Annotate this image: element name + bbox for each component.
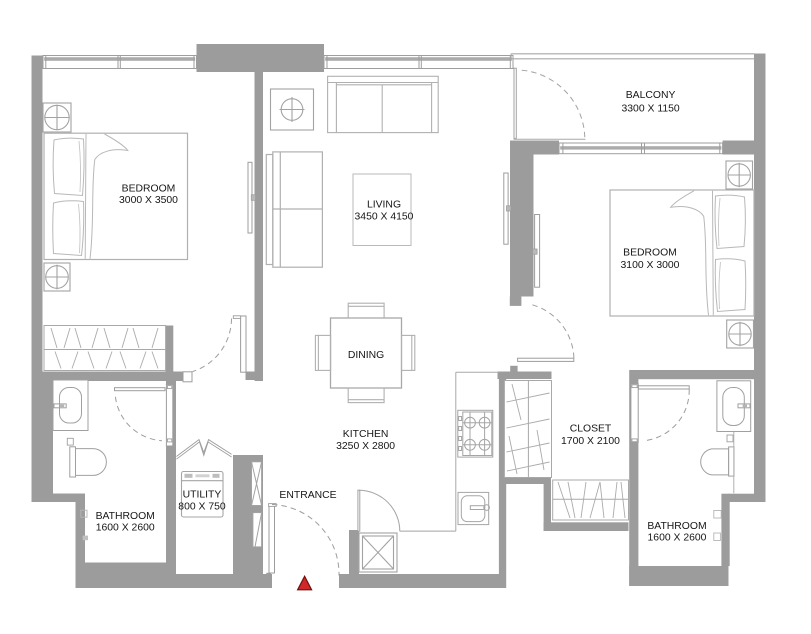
svg-text:3250 X 2800: 3250 X 2800 — [336, 441, 395, 452]
svg-text:DINING: DINING — [348, 350, 384, 361]
svg-text:1600 X 2600: 1600 X 2600 — [96, 522, 155, 533]
svg-text:3450 X 4150: 3450 X 4150 — [355, 211, 414, 222]
svg-text:1700 X 2100: 1700 X 2100 — [561, 436, 620, 447]
svg-text:1600 X 2600: 1600 X 2600 — [648, 533, 707, 544]
svg-text:BATHROOM: BATHROOM — [647, 521, 706, 532]
svg-text:BALCONY: BALCONY — [626, 90, 676, 101]
svg-text:KITCHEN: KITCHEN — [343, 429, 389, 440]
svg-text:BATHROOM: BATHROOM — [96, 511, 155, 522]
svg-text:BEDROOM: BEDROOM — [122, 183, 176, 194]
svg-text:3000 X 3500: 3000 X 3500 — [119, 195, 178, 206]
svg-text:CLOSET: CLOSET — [570, 424, 612, 435]
svg-text:LIVING: LIVING — [367, 200, 401, 211]
svg-text:UTILITY: UTILITY — [183, 490, 222, 501]
svg-text:BEDROOM: BEDROOM — [623, 248, 677, 259]
svg-text:3300 X 1150: 3300 X 1150 — [622, 104, 680, 115]
svg-text:800 X 750: 800 X 750 — [178, 502, 226, 513]
svg-text:3100 X 3000: 3100 X 3000 — [621, 260, 680, 271]
svg-text:ENTRANCE: ENTRANCE — [279, 490, 336, 501]
